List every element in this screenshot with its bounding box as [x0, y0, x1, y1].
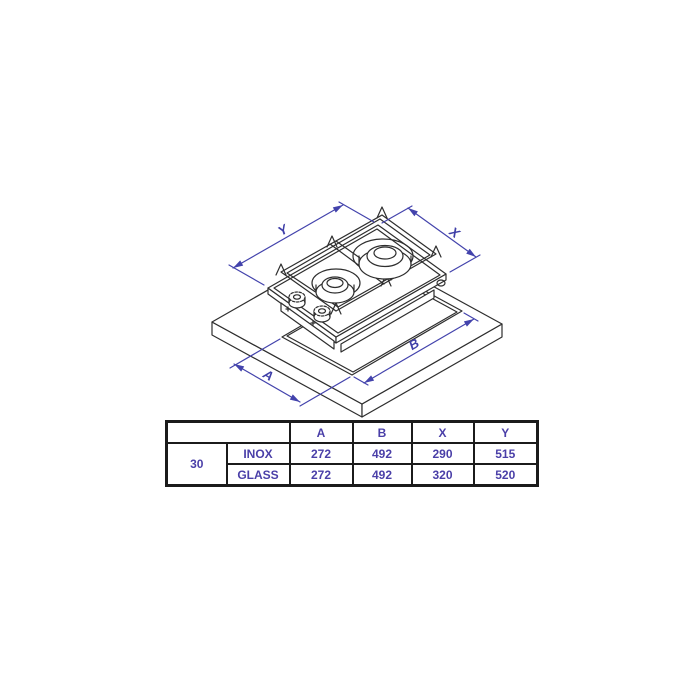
arrowhead-icon	[408, 208, 418, 216]
cell-inox-y: 515	[474, 443, 538, 464]
cell-inox-b: 492	[353, 443, 412, 464]
cell-inox-a: 272	[290, 443, 353, 464]
size-cell: 30	[167, 443, 227, 486]
dimension-label-x: X	[446, 223, 464, 242]
header-cell-x: X	[412, 422, 474, 444]
arrowhead-icon	[466, 249, 476, 257]
variant-cell-inox: INOX	[227, 443, 290, 464]
table-row-inox: 30 INOX 272 492 290 515	[167, 443, 538, 464]
arrowhead-icon	[290, 394, 300, 402]
dimensions-table: A B X Y 30 INOX 272 492 290 515 GLASS 27…	[165, 420, 539, 487]
cell-glass-b: 492	[353, 464, 412, 486]
arrowhead-icon	[234, 364, 244, 372]
header-cell-y: Y	[474, 422, 538, 444]
table-header-row: A B X Y	[167, 422, 538, 444]
isometric-diagram: Y X B A	[0, 0, 700, 700]
variant-cell-glass: GLASS	[227, 464, 290, 486]
dimension-label-a: A	[260, 366, 276, 384]
header-cell-a: A	[290, 422, 353, 444]
cell-inox-x: 290	[412, 443, 474, 464]
cell-glass-a: 272	[290, 464, 353, 486]
cell-glass-y: 520	[474, 464, 538, 486]
page: Y X B A	[0, 0, 700, 700]
header-cell-blank	[167, 422, 290, 444]
arrowhead-icon	[333, 205, 343, 213]
cell-glass-x: 320	[412, 464, 474, 486]
header-cell-b: B	[353, 422, 412, 444]
arrowhead-icon	[233, 260, 243, 268]
